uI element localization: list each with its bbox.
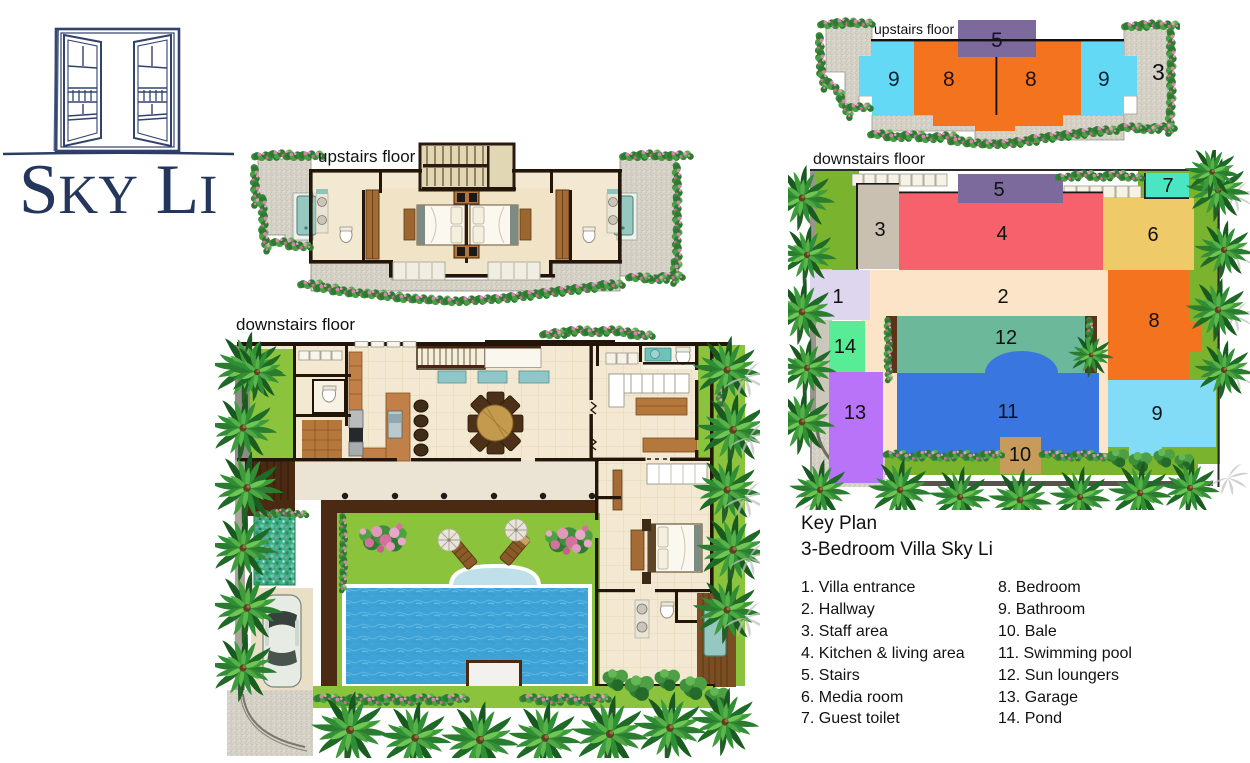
svg-text:9: 9 xyxy=(1098,68,1110,91)
svg-text:3: 3 xyxy=(1152,59,1165,85)
svg-text:8: 8 xyxy=(1148,310,1159,332)
svg-text:3: 3 xyxy=(874,219,885,241)
svg-text:downstairs floor: downstairs floor xyxy=(813,151,926,168)
svg-text:8: 8 xyxy=(943,68,955,91)
svg-text:9: 9 xyxy=(888,68,900,91)
svg-text:2: 2 xyxy=(997,286,1008,308)
svg-text:11: 11 xyxy=(998,401,1019,423)
svg-text:downstairs floor: downstairs floor xyxy=(236,315,355,334)
svg-text:12: 12 xyxy=(995,327,1017,349)
svg-text:upstairs floor: upstairs floor xyxy=(874,21,954,37)
svg-text:10: 10 xyxy=(1009,444,1031,466)
svg-text:9: 9 xyxy=(1151,403,1162,425)
svg-text:upstairs floor: upstairs floor xyxy=(318,147,416,166)
svg-text:6: 6 xyxy=(1147,224,1158,246)
svg-text:1: 1 xyxy=(832,286,843,308)
svg-text:8: 8 xyxy=(1025,68,1037,91)
svg-text:5: 5 xyxy=(993,179,1004,201)
svg-text:SKY LI: SKY LI xyxy=(19,151,217,229)
svg-text:4: 4 xyxy=(996,223,1007,245)
svg-text:7: 7 xyxy=(1162,175,1173,197)
svg-text:14: 14 xyxy=(834,336,856,358)
svg-text:13: 13 xyxy=(844,402,866,424)
